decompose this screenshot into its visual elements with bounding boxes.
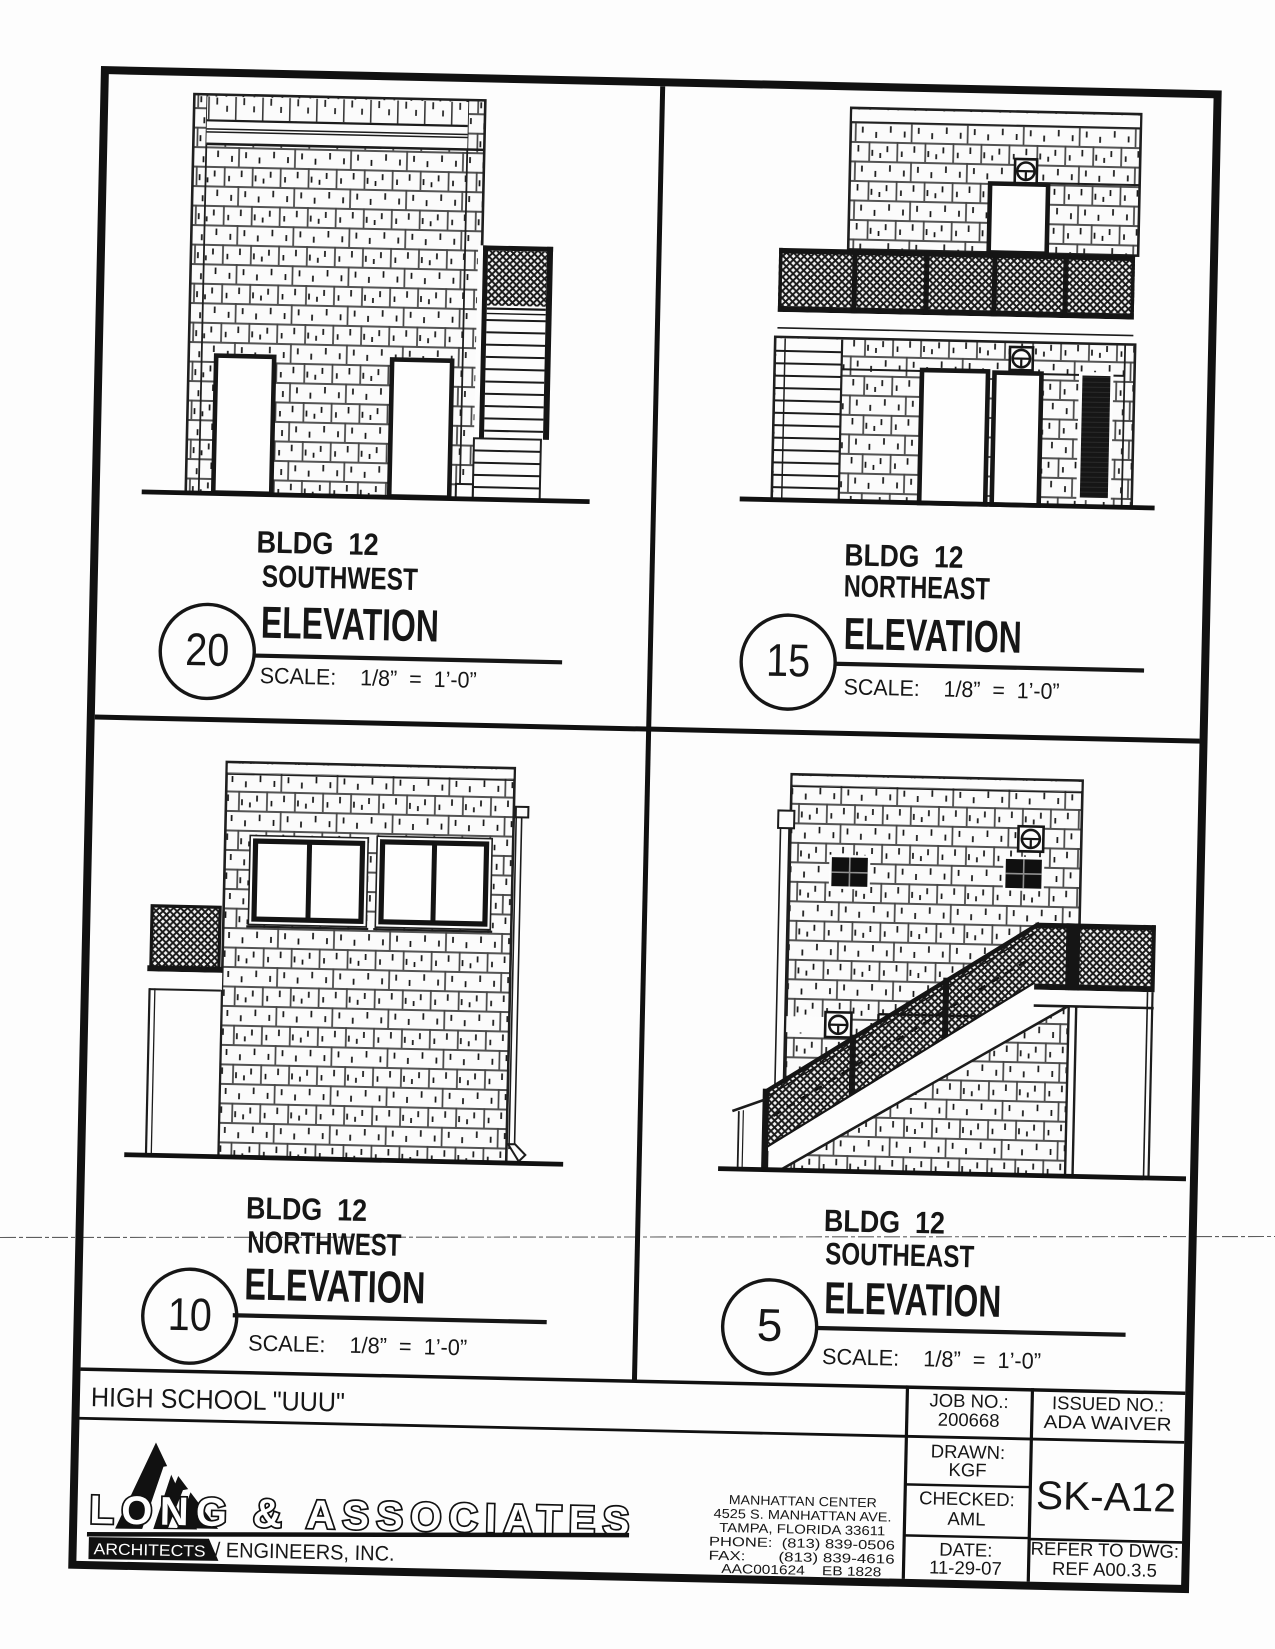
svg-text:11-29-07: 11-29-07: [929, 1556, 1002, 1579]
svg-text:BLDG 12: BLDG 12: [824, 1203, 946, 1241]
svg-text:BLDG 12: BLDG 12: [246, 1190, 368, 1228]
svg-text:AML: AML: [947, 1508, 985, 1530]
svg-text:ELEVATION: ELEVATION: [244, 1258, 426, 1313]
svg-text:SOUTHEAST: SOUTHEAST: [825, 1236, 975, 1274]
svg-text:SCALE: 1/8” = 1’-0”: SCALE: 1/8” = 1’-0”: [843, 674, 1059, 704]
svg-text:ELEVATION: ELEVATION: [260, 597, 439, 652]
svg-text:NORTHEAST: NORTHEAST: [843, 568, 990, 606]
svg-text:ADA WAIVER: ADA WAIVER: [1043, 1411, 1171, 1435]
svg-text:20: 20: [185, 623, 230, 676]
svg-text:SCALE: 1/8” = 1’-0”: SCALE: 1/8” = 1’-0”: [822, 1344, 1041, 1374]
svg-text:5: 5: [756, 1299, 783, 1352]
svg-text:HIGH SCHOOL "UUU": HIGH SCHOOL "UUU": [91, 1382, 346, 1418]
svg-text:BLDG 12: BLDG 12: [256, 525, 379, 563]
svg-text:SCALE: 1/8” = 1’-0”: SCALE: 1/8” = 1’-0”: [259, 663, 476, 693]
svg-text:15: 15: [766, 634, 811, 687]
svg-text:ELEVATION: ELEVATION: [824, 1272, 1002, 1327]
svg-text:SK-A12: SK-A12: [1036, 1474, 1177, 1521]
svg-text:ELEVATION: ELEVATION: [843, 608, 1022, 663]
svg-text:KGF: KGF: [948, 1459, 986, 1481]
svg-text:REF A00.3.5: REF A00.3.5: [1052, 1558, 1157, 1581]
svg-text:SOUTHWEST: SOUTHWEST: [262, 559, 419, 597]
svg-text:SCALE: 1/8” = 1’-0”: SCALE: 1/8” = 1’-0”: [248, 1331, 467, 1361]
svg-text:ARCHITECTS: ARCHITECTS: [93, 1541, 205, 1560]
svg-text:NORTHWEST: NORTHWEST: [247, 1224, 402, 1262]
svg-text:/ ENGINEERS, INC.: / ENGINEERS, INC.: [214, 1539, 394, 1566]
svg-text:CHECKED:: CHECKED:: [919, 1487, 1015, 1510]
svg-text:10: 10: [167, 1288, 212, 1341]
svg-text:200668: 200668: [938, 1409, 1000, 1431]
